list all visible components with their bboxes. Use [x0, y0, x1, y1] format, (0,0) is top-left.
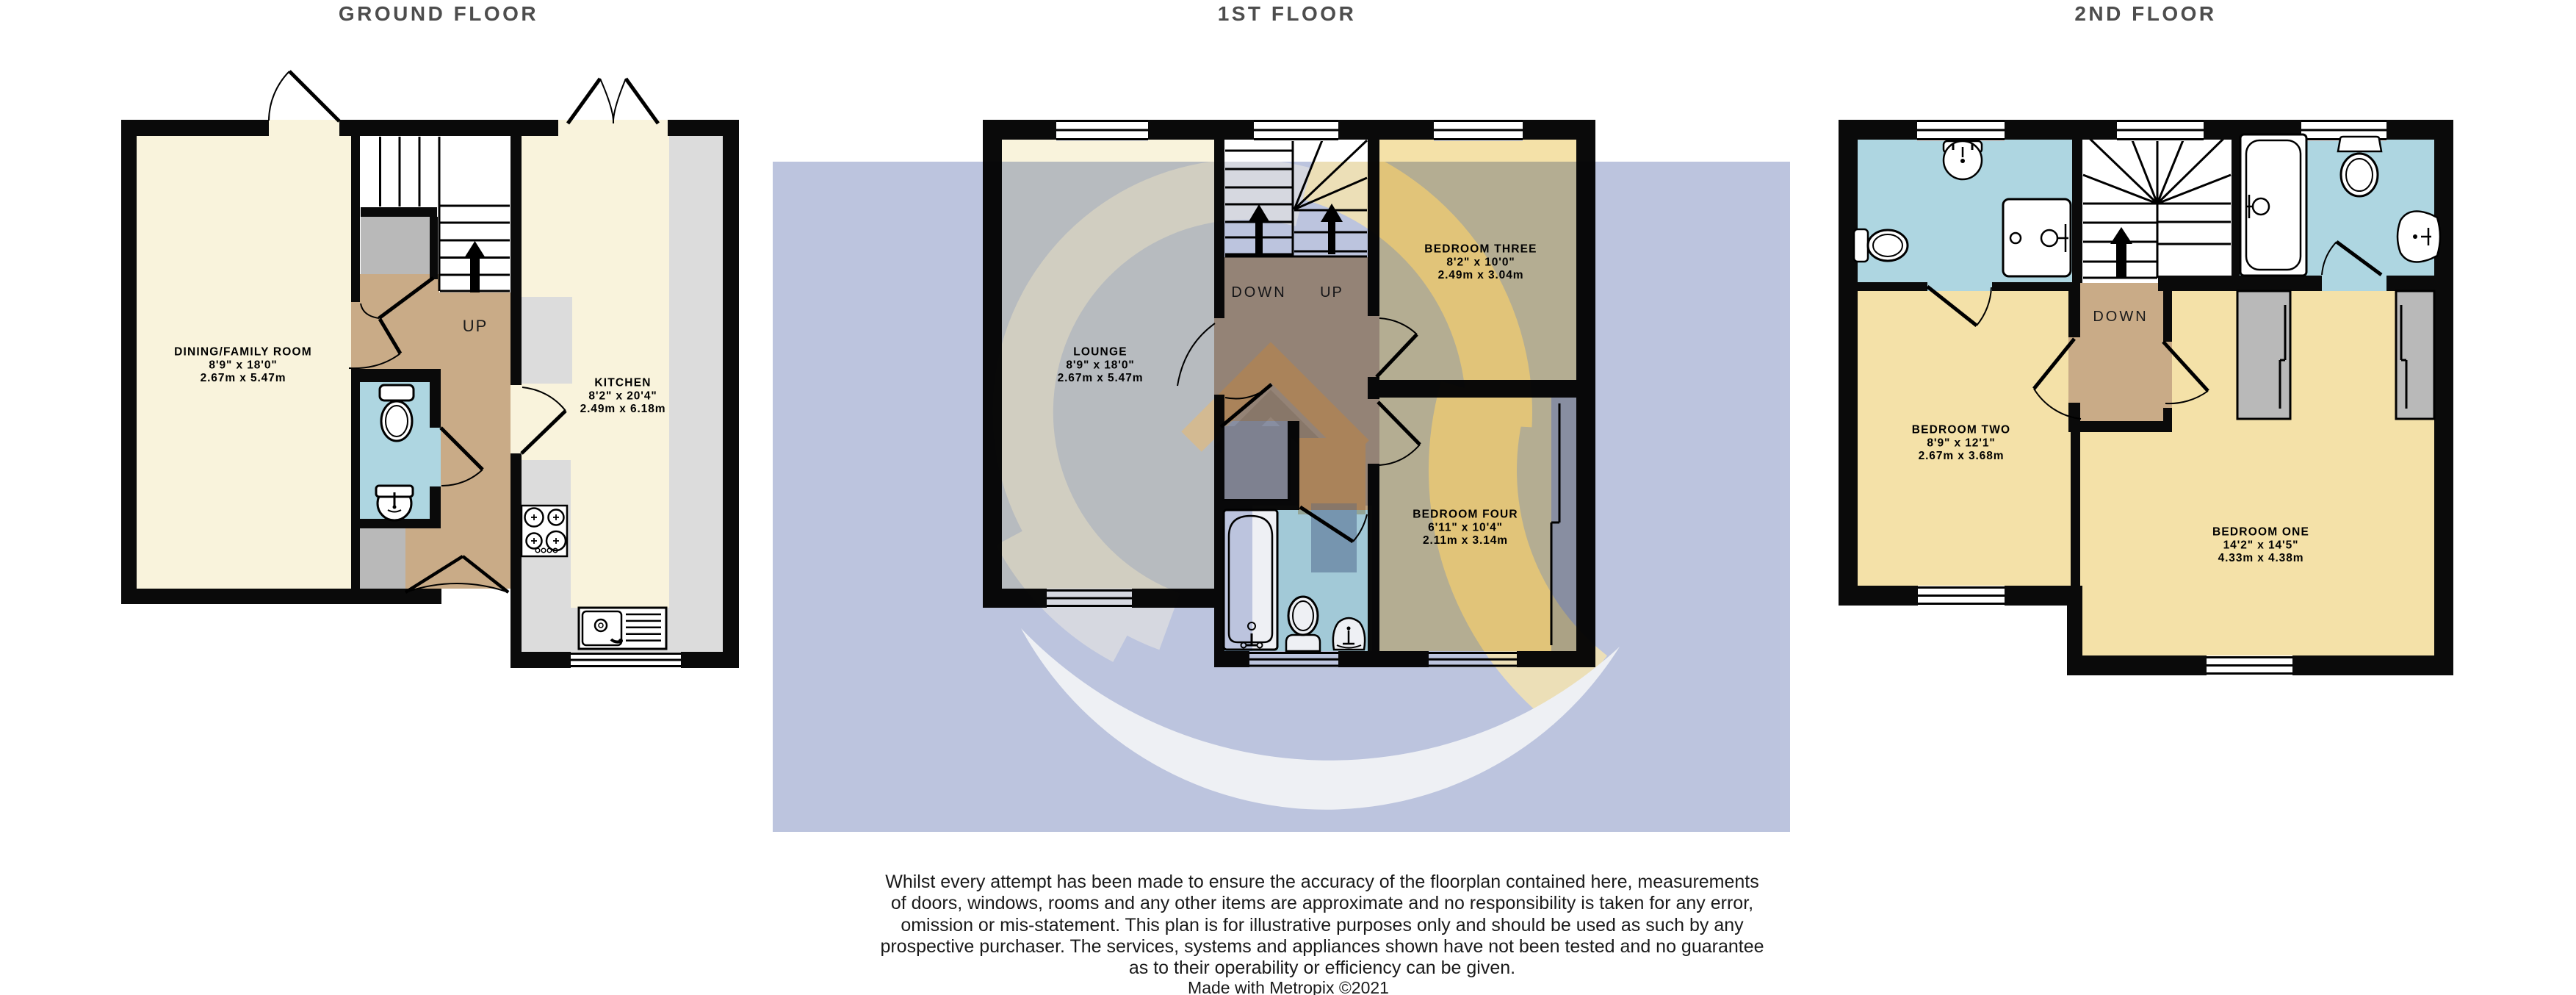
svg-text:2.67m x 3.68m: 2.67m x 3.68m	[1919, 450, 2005, 462]
svg-text:8'2" x 20'4": 8'2" x 20'4"	[588, 390, 657, 403]
svg-text:14'2" x 14'5": 14'2" x 14'5"	[2223, 539, 2299, 552]
svg-text:BEDROOM TWO: BEDROOM TWO	[1912, 424, 2011, 437]
svg-text:KITCHEN: KITCHEN	[594, 377, 651, 389]
svg-text:prospective purchaser. The ser: prospective purchaser. The services, sys…	[880, 936, 1764, 957]
svg-text:Whilst every attempt has been: Whilst every attempt has been made to en…	[885, 872, 1759, 892]
svg-text:Made with Metropix ©2021: Made with Metropix ©2021	[1188, 978, 1389, 995]
svg-text:as to their operability or eff: as to their operability or efficiency ca…	[1129, 958, 1515, 978]
svg-text:GROUND FLOOR: GROUND FLOOR	[339, 2, 538, 25]
svg-text:4.33m x 4.38m: 4.33m x 4.38m	[2218, 552, 2304, 564]
svg-text:2ND FLOOR: 2ND FLOOR	[2074, 2, 2216, 25]
svg-text:2.49m x 6.18m: 2.49m x 6.18m	[580, 403, 666, 415]
svg-text:UP: UP	[463, 317, 488, 335]
svg-text:8'9" x 18'0": 8'9" x 18'0"	[209, 359, 277, 372]
svg-text:8'9" x 12'1": 8'9" x 12'1"	[1927, 437, 1995, 450]
svg-text:of doors, windows, rooms and a: of doors, windows, rooms and any other i…	[891, 893, 1753, 913]
svg-text:DINING/FAMILY ROOM: DINING/FAMILY ROOM	[174, 346, 312, 359]
svg-text:1ST FLOOR: 1ST FLOOR	[1218, 2, 1357, 25]
svg-text:omission or mis-statement. Thi: omission or mis-statement. This plan is …	[901, 915, 1744, 935]
svg-text:DOWN: DOWN	[2093, 309, 2148, 325]
svg-text:BEDROOM ONE: BEDROOM ONE	[2212, 526, 2309, 539]
svg-text:2.67m x 5.47m: 2.67m x 5.47m	[201, 372, 286, 384]
